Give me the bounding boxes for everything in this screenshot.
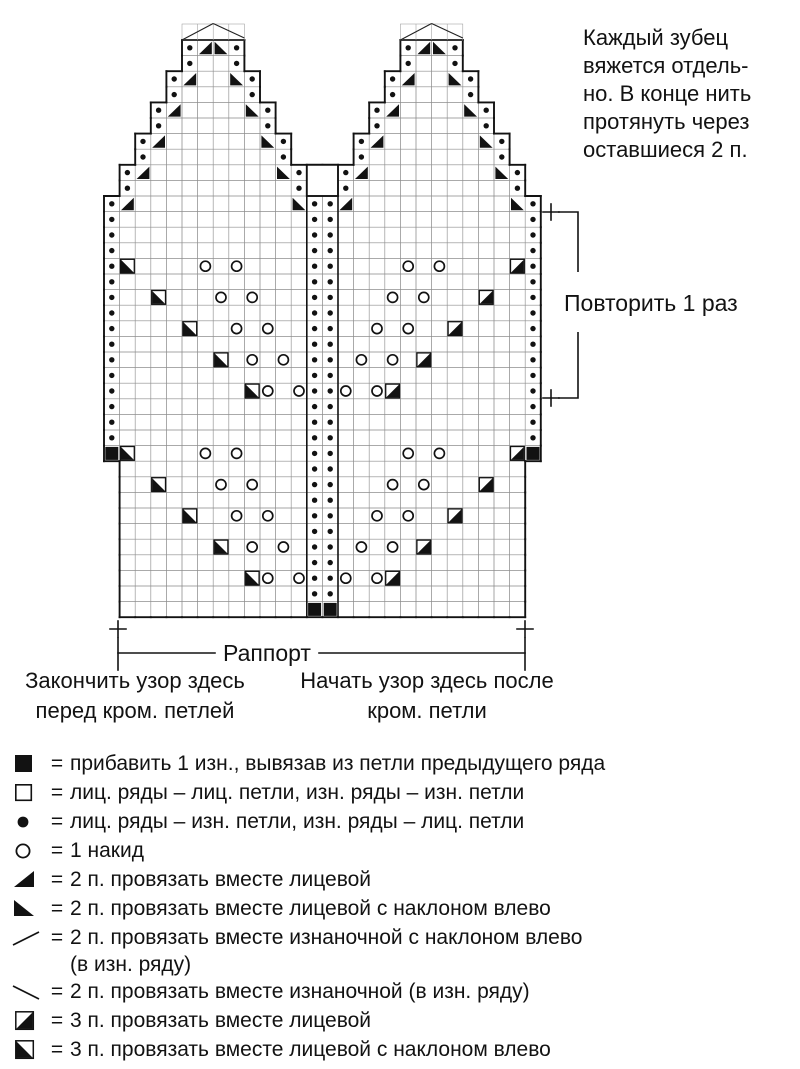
pattern-end-label-line2: перед кром. петлей <box>20 696 250 726</box>
square-empty-icon <box>10 779 44 806</box>
square-filled-icon <box>10 750 44 777</box>
pattern-start-label-line1: Начать узор здесь после <box>298 666 556 696</box>
legend-item-text: 2 п. провязать вместе лицевой с наклоном… <box>70 895 551 922</box>
square-lower-left-filled-icon <box>10 1036 44 1063</box>
square-lower-right-filled-icon <box>10 1007 44 1034</box>
pattern-start-label: Начать узор здесь после кром. петли <box>298 666 556 726</box>
tooth-roofs <box>182 24 463 41</box>
rapport-label: Раппорт <box>217 640 317 667</box>
legend-item-text: лиц. ряды – лиц. петли, изн. ряды – изн.… <box>70 779 524 806</box>
legend-item-text: 2 п. провязать вместе изнаночной с накло… <box>70 924 582 978</box>
legend-item: =3 п. провязать вместе лицевой <box>10 1007 800 1036</box>
legend-item-text: 3 п. провязать вместе лицевой с наклоном… <box>70 1036 551 1063</box>
legend-item: =2 п. провязать вместе лицевой с наклоно… <box>10 895 800 924</box>
legend-equals: = <box>44 808 70 835</box>
legend-item: =2 п. провязать вместе лицевой <box>10 866 800 895</box>
legend-item-text: 2 п. провязать вместе лицевой <box>70 866 371 893</box>
legend-item: =лиц. ряды – изн. петли, изн. ряды – лиц… <box>10 808 800 837</box>
pattern-end-label: Закончить узор здесь перед кром. петлей <box>20 666 250 726</box>
legend-equals: = <box>44 779 70 806</box>
repeat-bracket-label: Повторить 1 раз <box>564 290 738 317</box>
legend-item-text: 3 п. провязать вместе лицевой <box>70 1007 371 1034</box>
triangle-bottom-right-icon <box>10 866 44 893</box>
legend-equals: = <box>44 837 70 864</box>
legend-item-text: 1 накид <box>70 837 144 864</box>
backslash-icon <box>10 978 44 1005</box>
knitting-pattern-page: { "note": { "lines": ["Каждый зубец", "в… <box>0 0 800 1069</box>
legend-equals: = <box>44 750 70 777</box>
pattern-start-label-line2: кром. петли <box>298 696 556 726</box>
legend-item-text: прибавить 1 изн., вывязав из петли преды… <box>70 750 605 777</box>
legend-equals: = <box>44 924 70 951</box>
chart-grid <box>104 40 541 617</box>
legend-item: =прибавить 1 изн., вывязав из петли пред… <box>10 750 800 779</box>
legend-item: =3 п. провязать вместе лицевой с наклоно… <box>10 1036 800 1065</box>
legend-equals: = <box>44 1007 70 1034</box>
circle-empty-icon <box>10 837 44 864</box>
legend-item: =2 п. провязать вместе изнаночной с накл… <box>10 924 800 978</box>
legend-item-text: лиц. ряды – изн. петли, изн. ряды – лиц.… <box>70 808 524 835</box>
legend-item: =лиц. ряды – лиц. петли, изн. ряды – изн… <box>10 779 800 808</box>
legend-list: =прибавить 1 изн., вывязав из петли пред… <box>10 750 800 1065</box>
legend-equals: = <box>44 895 70 922</box>
note-line: оставшиеся 2 п. <box>583 136 798 164</box>
legend-equals: = <box>44 978 70 1005</box>
chart-outline <box>104 40 559 670</box>
legend-item-text: 2 п. провязать вместе изнаночной (в изн.… <box>70 978 530 1005</box>
dot-filled-icon <box>10 808 44 835</box>
note-line: но. В конце нить <box>583 80 798 108</box>
legend: =прибавить 1 изн., вывязав из петли пред… <box>10 750 800 1065</box>
legend-item: =2 п. провязать вместе изнаночной (в изн… <box>10 978 800 1007</box>
note-text-block: Каждый зубец вяжется отдель- но. В конце… <box>583 24 798 164</box>
triangle-bottom-left-icon <box>10 895 44 922</box>
pattern-end-label-line1: Закончить узор здесь <box>20 666 250 696</box>
legend-equals: = <box>44 866 70 893</box>
slash-icon <box>10 924 44 951</box>
note-line: протянуть через <box>583 108 798 136</box>
note-line: вяжется отдель- <box>583 52 798 80</box>
note-line: Каждый зубец <box>583 24 798 52</box>
legend-item: =1 накид <box>10 837 800 866</box>
legend-equals: = <box>44 1036 70 1063</box>
